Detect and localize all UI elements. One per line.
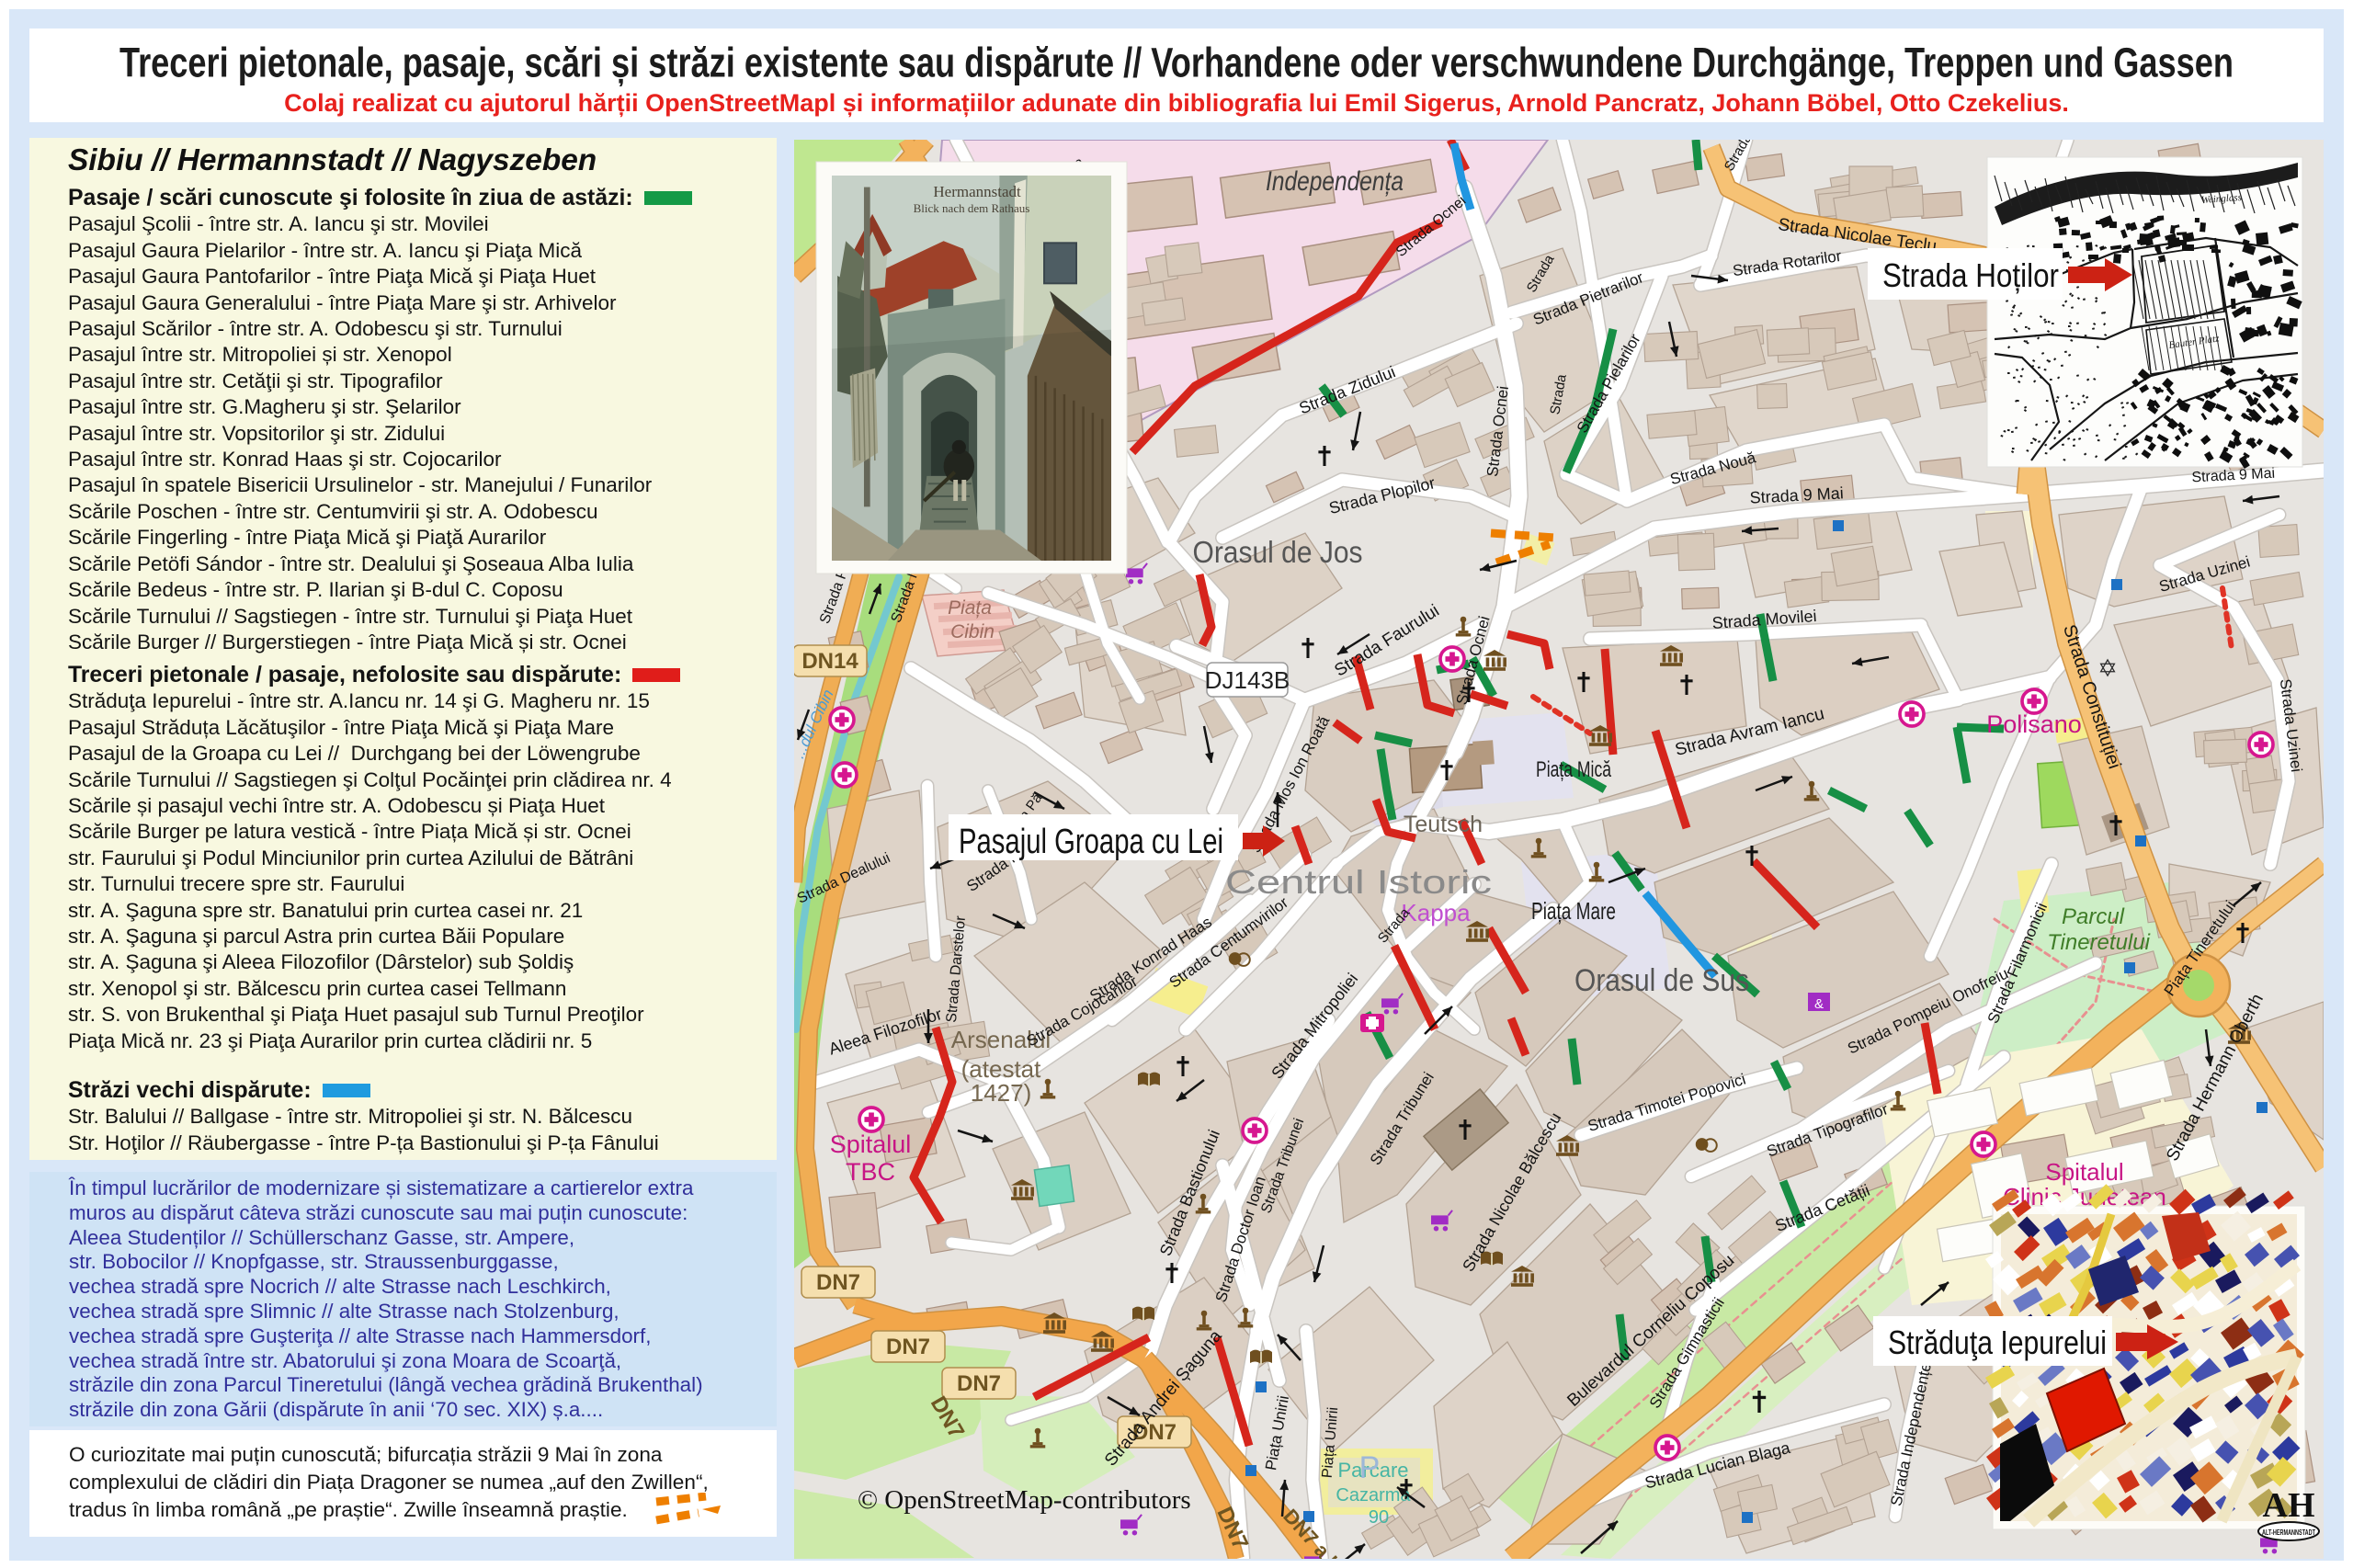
svg-text:DN7: DN7 (886, 1335, 930, 1359)
svg-text:Cibin: Cibin (950, 621, 995, 642)
svg-text:90: 90 (1369, 1507, 1389, 1528)
svg-text:Spitalul: Spitalul (2045, 1158, 2123, 1186)
svg-text:Teutsch: Teutsch (1404, 812, 1483, 837)
svg-text:DJ143B: DJ143B (1205, 666, 1290, 694)
svg-text:Blick nach dem Rathaus: Blick nach dem Rathaus (914, 201, 1030, 215)
svg-text:© OpenStreetMap-contributors: © OpenStreetMap-contributors (858, 1485, 1191, 1515)
svg-text:ALT-HERMANNSTADT: ALT-HERMANNSTADT (2262, 1528, 2315, 1537)
svg-text:Polisano: Polisano (1986, 710, 2082, 738)
svg-text:DN14: DN14 (801, 649, 858, 674)
svg-text:1427): 1427) (971, 1079, 1032, 1107)
svg-text:Spitalul: Spitalul (830, 1131, 912, 1158)
svg-text:Piața Mică: Piața Mică (1536, 757, 1611, 782)
svg-text:Tineretului: Tineretului (2047, 930, 2151, 955)
svg-text:P: P (1359, 1450, 1381, 1485)
svg-text:DN7: DN7 (816, 1270, 860, 1295)
svg-text:DN7: DN7 (957, 1371, 1001, 1396)
svg-text:Orasul de Sus: Orasul de Sus (1574, 963, 1749, 998)
svg-text:Centrul Istoric: Centrul Istoric (1225, 863, 1492, 901)
svg-text:Pasajul Groapa cu Lei: Pasajul Groapa cu Lei (959, 823, 1223, 861)
svg-text:Hermannstadt: Hermannstadt (933, 183, 1021, 200)
svg-text:Piața: Piața (948, 597, 992, 619)
svg-text:Piața Mare: Piața Mare (1531, 897, 1616, 925)
svg-text:Kappa: Kappa (1401, 899, 1471, 926)
svg-text:Străduţa Iepurelui: Străduţa Iepurelui (1888, 1324, 2107, 1361)
svg-text:Independența: Independența (1266, 166, 1404, 197)
svg-text:&: & (1814, 996, 1824, 1012)
svg-text:TBC: TBC (846, 1158, 895, 1186)
svg-text:AH: AH (2263, 1486, 2315, 1525)
svg-text:Strada Hoților: Strada Hoților (1882, 256, 2059, 294)
svg-text:✡: ✡ (2097, 654, 2118, 682)
svg-text:Parcul: Parcul (2062, 904, 2125, 929)
svg-text:Orasul de Jos: Orasul de Jos (1193, 535, 1363, 569)
